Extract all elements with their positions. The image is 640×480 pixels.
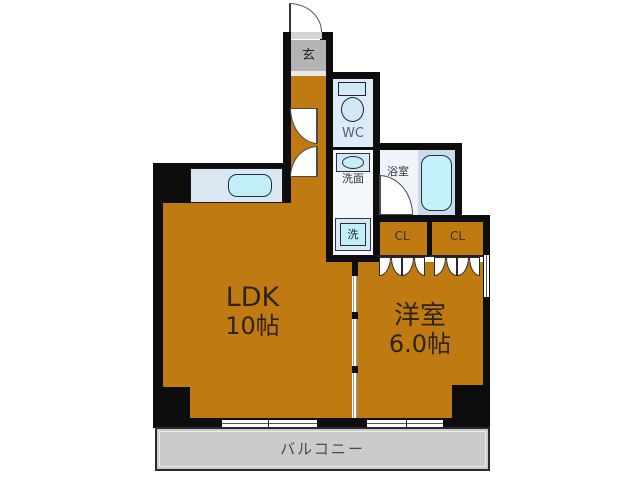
wall-wc-right [373, 72, 380, 150]
ldk-label: LDK [170, 281, 335, 313]
ldk-size-label: 10帖 [170, 311, 335, 341]
wall-washroom-bottom [326, 255, 377, 262]
ldk-balcony-window [222, 420, 317, 427]
wall-genkan-hall-left [283, 32, 291, 203]
western-room-size-label: 6.0帖 [357, 330, 483, 358]
western-room-side-window [484, 255, 489, 297]
window-sash-line [367, 423, 443, 424]
genkan-label: 玄 [291, 42, 326, 68]
balcony: バルコニー [155, 427, 490, 471]
floorplan: 玄 WC 洗面 洗 浴室 CL CL バル [0, 0, 640, 480]
entrance-sill [291, 32, 322, 39]
window-sash-line [222, 423, 317, 424]
partition-stub [352, 262, 358, 276]
closet2-label: CL [432, 228, 483, 244]
pillar-bottom-right [452, 385, 490, 428]
wall-wc-washroom-divider [333, 147, 373, 150]
kitchen-sink-icon [228, 174, 272, 197]
wall-bath-right [455, 143, 462, 222]
washroom-label: 洗面 [331, 171, 375, 186]
sliding-door-tick-2 [352, 366, 358, 373]
bathroom-label: 浴室 [376, 164, 420, 178]
closet1-label: CL [377, 228, 427, 244]
western-room-balcony-window [367, 420, 443, 427]
window-sash-line [486, 255, 487, 297]
toilet-tank-icon [338, 82, 366, 96]
western-room-label: 洋室 [357, 301, 483, 331]
wc-label: WC [333, 123, 373, 143]
wall-bath-top [373, 143, 462, 150]
wall-closet-top [373, 215, 490, 222]
balcony-label: バルコニー [157, 429, 488, 469]
washbasin-icon [342, 156, 364, 169]
laundry-label: 洗 [340, 223, 366, 246]
closet2-bifold-door-icon [434, 257, 480, 276]
bathtub-icon [421, 155, 452, 211]
entrance-door-swing-icon [289, 3, 322, 32]
wall-hall-right [326, 32, 333, 262]
closet1-bifold-door-icon [379, 257, 425, 276]
toilet-bowl-icon [341, 97, 364, 122]
